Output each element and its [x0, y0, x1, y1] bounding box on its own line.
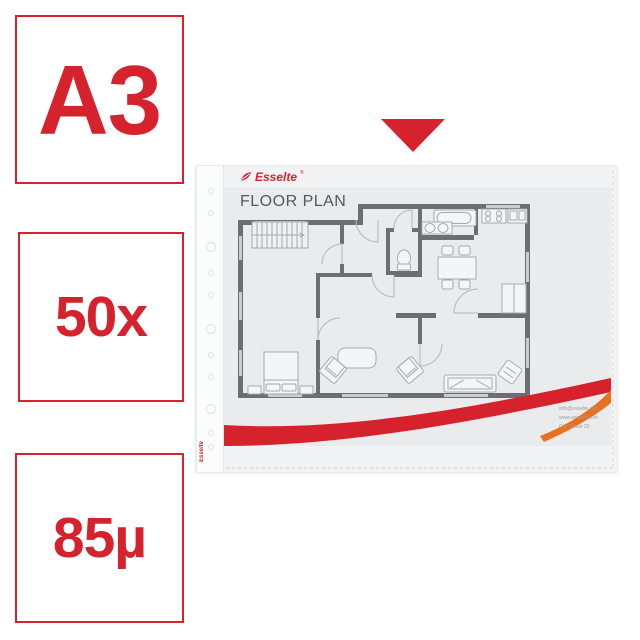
punch-hole-icon	[208, 270, 214, 276]
plan-stairs	[252, 222, 308, 248]
weld-seam-right	[612, 170, 614, 468]
swoosh-graphic	[224, 370, 611, 446]
brand-logo: Esselte ®	[240, 169, 304, 185]
punched-pocket: Esselte ® FLOOR PLAN	[196, 166, 617, 472]
brand-name: Esselte	[255, 170, 297, 184]
product-hero-image: A3 50x 85µ Esselte	[0, 0, 640, 640]
contact-block: info@esselte.com www.esselte.com City St…	[559, 405, 599, 432]
punch-hole-icon	[208, 210, 214, 216]
floor-plan-drawing	[238, 200, 534, 398]
strip-brand-text: Esselte	[199, 436, 209, 466]
punch-hole-icon	[206, 242, 216, 252]
contact-line: www.esselte.com	[559, 414, 599, 423]
punch-hole-icon	[208, 352, 214, 358]
contact-line: City Street 20	[559, 423, 599, 432]
punch-hole-icon	[206, 404, 216, 414]
punch-hole-icon	[208, 188, 214, 194]
floor-plan-document: FLOOR PLAN	[224, 187, 611, 446]
badge-size-a3: A3	[15, 15, 184, 184]
badge-thickness-label: 85µ	[53, 510, 146, 567]
badge-count-50x: 50x	[18, 232, 184, 402]
punch-hole-icon	[208, 292, 214, 298]
punch-hole-icon	[206, 324, 216, 334]
badge-thickness-85u: 85µ	[15, 453, 184, 623]
badge-size-label: A3	[38, 51, 161, 149]
punch-hole-icon	[208, 374, 214, 380]
badge-count-label: 50x	[55, 289, 147, 346]
triangle-down-icon	[381, 119, 445, 152]
registered-mark: ®	[300, 170, 304, 176]
punched-filing-strip	[196, 166, 224, 472]
weld-seam-bottom	[226, 467, 613, 469]
esselte-leaf-icon	[240, 171, 252, 183]
contact-line: info@esselte.com	[559, 405, 599, 414]
